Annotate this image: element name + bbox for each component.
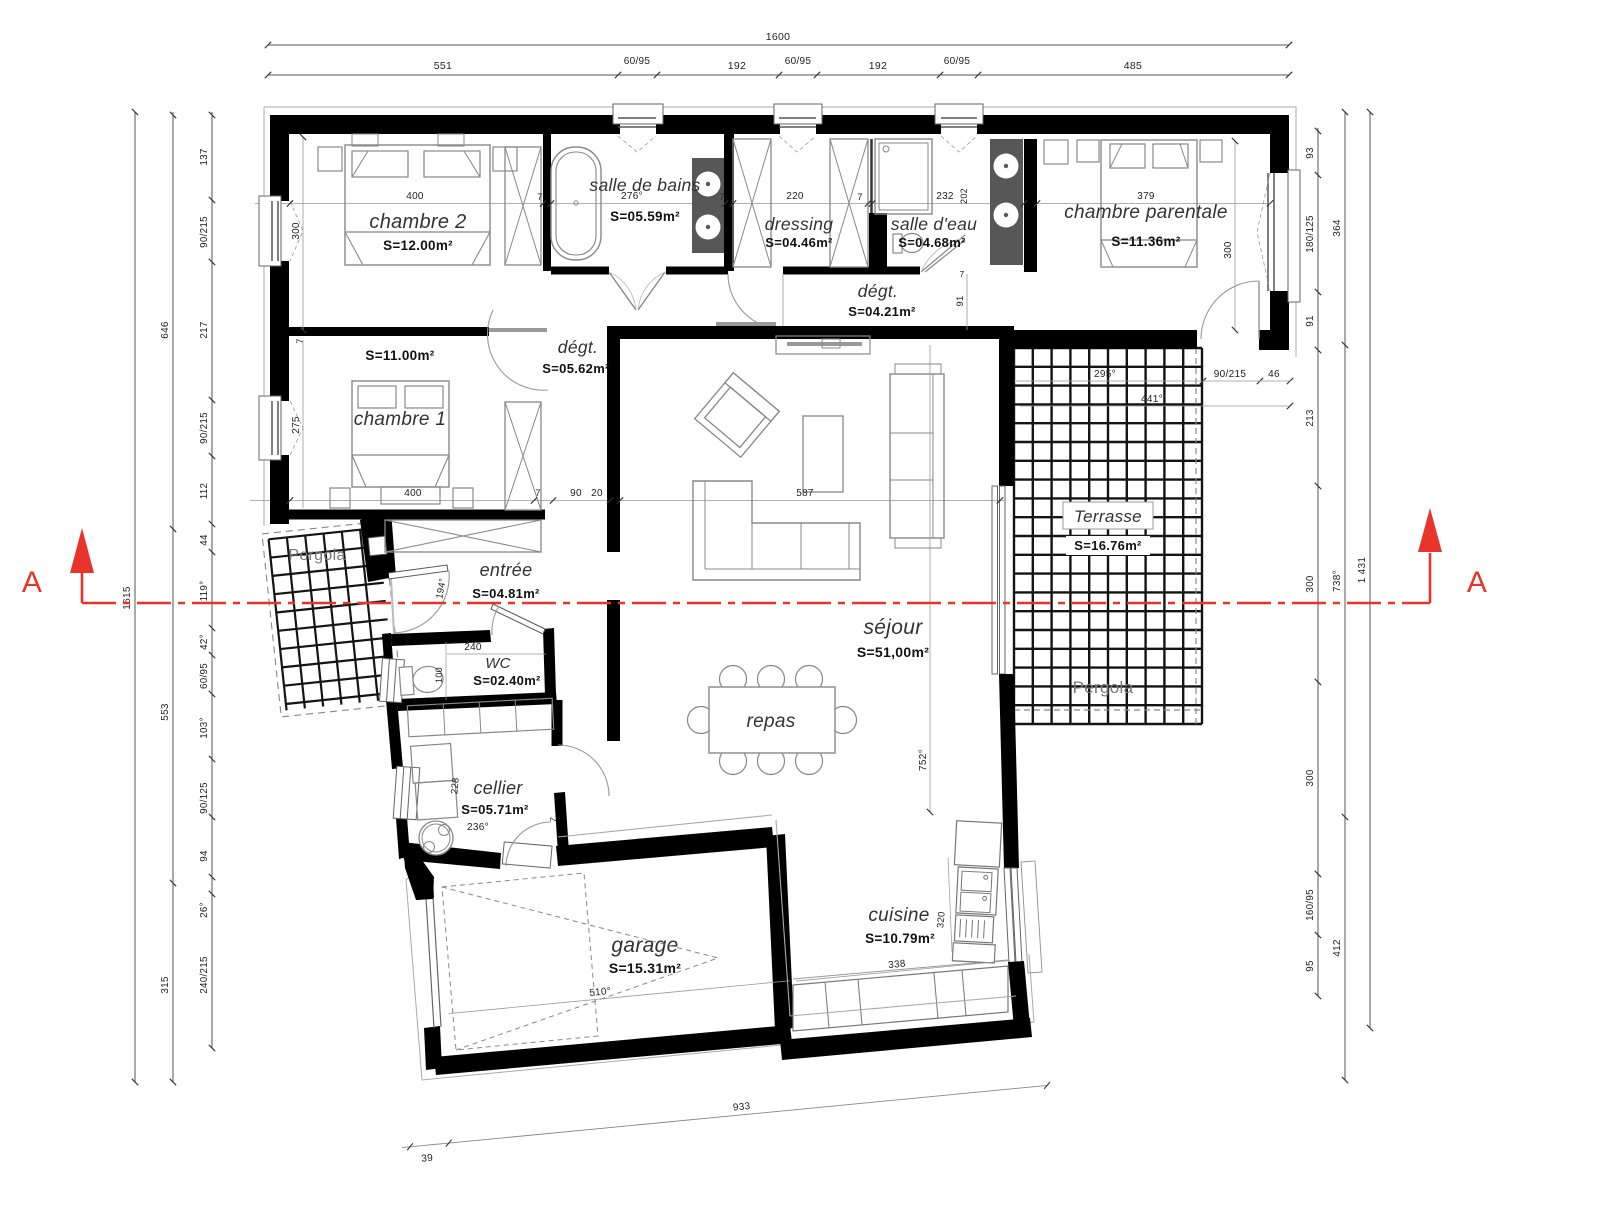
svg-text:26°: 26° [199,902,210,918]
svg-text:S=05.62m²: S=05.62m² [542,361,610,376]
svg-text:Pergola: Pergola [288,547,345,564]
svg-text:S=04.46m²: S=04.46m² [765,235,833,250]
svg-text:240/215: 240/215 [199,956,210,994]
svg-text:95: 95 [1305,960,1316,972]
svg-text:7: 7 [435,703,445,708]
svg-text:90/215: 90/215 [1214,369,1247,380]
svg-text:A: A [22,566,42,599]
svg-text:379: 379 [1137,191,1155,202]
svg-text:cuisine: cuisine [868,905,929,926]
svg-text:1600: 1600 [766,31,791,43]
svg-text:213: 213 [1305,409,1316,426]
svg-text:412: 412 [1332,939,1343,957]
svg-text:dressing: dressing [765,214,834,234]
svg-text:S=02.40m²: S=02.40m² [473,673,541,688]
svg-text:275: 275 [291,416,302,434]
svg-text:S=16.76m²: S=16.76m² [1074,538,1142,553]
svg-text:séjour: séjour [864,616,924,639]
svg-text:933: 933 [732,1101,751,1114]
svg-text:91: 91 [955,295,966,306]
svg-text:S=10.79m²: S=10.79m² [865,931,935,946]
svg-text:44: 44 [199,534,210,546]
svg-text:S=51,00m²: S=51,00m² [857,644,929,660]
svg-text:90/125: 90/125 [199,782,210,814]
svg-text:160/95: 160/95 [1305,889,1316,921]
svg-text:dégt.: dégt. [558,337,598,357]
svg-text:192: 192 [728,60,746,72]
svg-text:217: 217 [199,321,210,338]
svg-text:salle d'eau: salle d'eau [891,214,977,234]
svg-text:S=05.71m²: S=05.71m² [461,802,529,817]
svg-text:46: 46 [1268,369,1280,380]
svg-text:553: 553 [160,703,171,721]
svg-text:103°: 103° [199,717,210,738]
svg-text:180/125: 180/125 [1305,215,1316,253]
svg-text:garage: garage [611,934,678,957]
svg-text:S=05.59m²: S=05.59m² [610,209,680,224]
svg-text:A: A [1467,566,1487,599]
svg-text:441°: 441° [1141,394,1163,405]
svg-text:entrée: entrée [480,560,533,580]
svg-text:42°: 42° [199,634,210,650]
svg-text:20: 20 [591,488,603,499]
svg-text:60/95: 60/95 [624,56,651,67]
svg-text:WC: WC [485,655,511,672]
svg-text:S=04.21m²: S=04.21m² [848,304,916,319]
svg-text:60/95: 60/95 [944,56,971,67]
svg-text:276°: 276° [621,191,643,202]
svg-text:752°: 752° [918,749,929,771]
svg-text:315: 315 [160,976,171,994]
svg-text:240: 240 [464,642,482,653]
svg-text:202: 202 [959,188,969,204]
svg-text:338: 338 [888,958,907,971]
svg-text:7: 7 [857,192,862,202]
svg-text:7: 7 [295,338,305,343]
svg-text:738°: 738° [1332,570,1343,592]
svg-text:295°: 295° [1094,369,1116,380]
svg-text:232: 232 [936,191,954,202]
svg-text:400: 400 [404,488,422,499]
svg-text:94: 94 [199,850,210,862]
svg-text:60/95: 60/95 [785,56,812,67]
svg-text:192: 192 [869,60,887,72]
svg-text:364: 364 [1332,219,1343,237]
svg-text:chambre 1: chambre 1 [354,409,446,430]
svg-text:1 431: 1 431 [1357,557,1368,584]
svg-text:300: 300 [1305,575,1316,592]
svg-text:137: 137 [199,148,210,165]
svg-text:320: 320 [935,911,947,929]
svg-text:60/95: 60/95 [199,663,210,689]
svg-text:S=15.31m²: S=15.31m² [609,960,681,976]
svg-text:400: 400 [406,191,424,202]
svg-text:salle de bains: salle de bains [589,175,700,195]
svg-text:646: 646 [160,321,171,339]
svg-text:7: 7 [719,192,724,202]
svg-text:7: 7 [959,269,964,279]
svg-text:1615: 1615 [122,586,133,610]
svg-text:300: 300 [291,222,302,240]
svg-text:S=11.00m²: S=11.00m² [365,348,434,363]
svg-text:repas: repas [746,711,795,732]
svg-text:dégt.: dégt. [858,281,898,301]
svg-text:90: 90 [570,488,582,499]
svg-text:S=12.00m²: S=12.00m² [383,238,453,253]
svg-text:S=04.81m²: S=04.81m² [472,586,540,601]
svg-text:551: 551 [434,60,452,72]
svg-text:485: 485 [1124,60,1142,72]
svg-text:Terrasse: Terrasse [1074,507,1142,526]
svg-text:chambre 2: chambre 2 [369,211,466,233]
svg-text:7: 7 [535,488,540,498]
svg-text:90/215: 90/215 [199,412,210,444]
svg-text:93: 93 [1305,147,1316,159]
svg-text:220: 220 [786,191,804,202]
svg-text:91: 91 [1305,315,1316,327]
svg-text:112: 112 [199,483,210,500]
svg-text:228: 228 [449,777,461,795]
svg-text:119°: 119° [199,581,210,602]
svg-text:S=04.68m²: S=04.68m² [898,235,966,250]
svg-text:Pergola: Pergola [1073,678,1134,697]
svg-text:chambre parentale: chambre parentale [1064,202,1228,223]
svg-text:100: 100 [434,667,444,683]
svg-text:39: 39 [421,1153,434,1165]
svg-text:300: 300 [1305,769,1316,786]
svg-text:7: 7 [537,192,542,202]
svg-text:90/215: 90/215 [199,216,210,248]
svg-text:587: 587 [796,488,814,499]
svg-text:300: 300 [1223,241,1234,259]
svg-text:S=11.36m²: S=11.36m² [1111,234,1180,249]
svg-text:236°: 236° [467,822,489,833]
svg-text:510°: 510° [589,986,612,999]
svg-text:cellier: cellier [473,778,523,798]
